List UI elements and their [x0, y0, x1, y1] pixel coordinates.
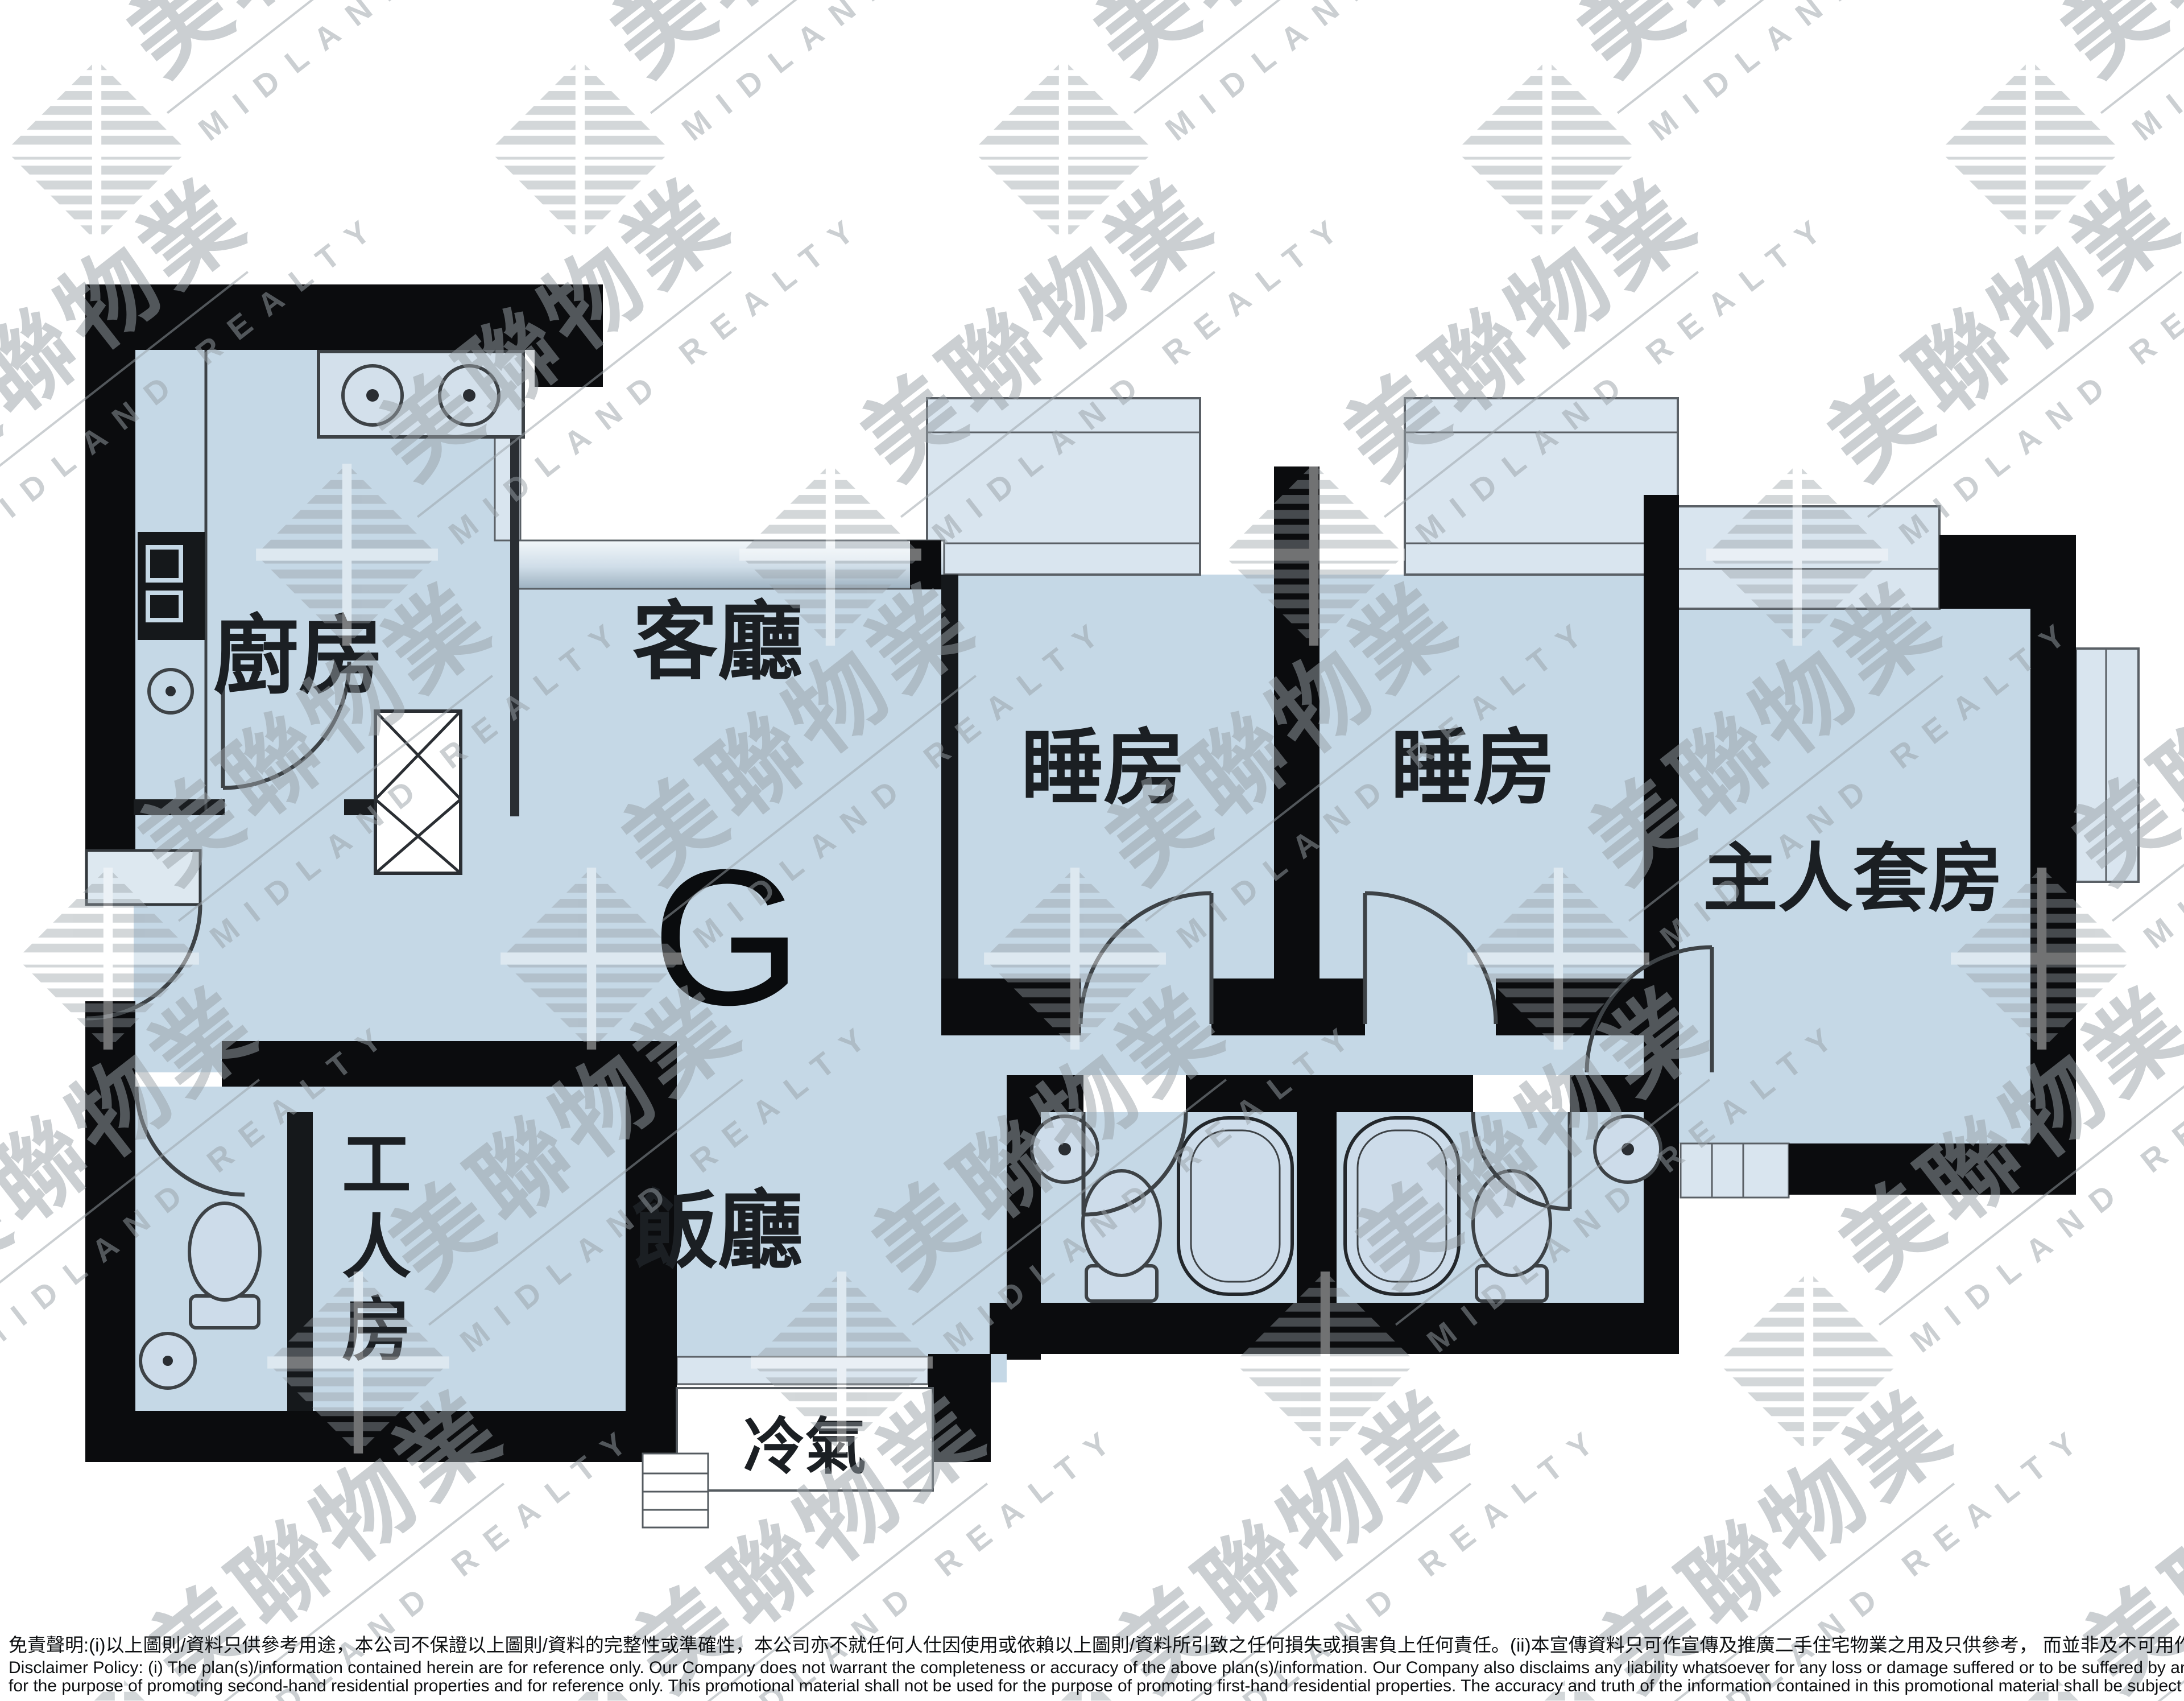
- bath2-top-wall-a: [1337, 1075, 1473, 1112]
- master-left-wall-top: [1644, 495, 1679, 609]
- bath-divider-wall: [1297, 1112, 1337, 1303]
- ac-louvre-box: [643, 1454, 708, 1527]
- living-room-label: 客廳: [632, 594, 803, 690]
- floor-plan-page: { "floor_plan": { "unit_letter": "G", "r…: [0, 0, 2184, 1701]
- floor-plan-canvas: 美聯物業 MIDLAND REALTY: [0, 0, 2184, 1701]
- disclaimer-en-line1: Disclaimer Policy: (i) The plan(s)/infor…: [9, 1658, 2184, 1677]
- disclaimer-en-line2: for the purpose of promoting second-hand…: [9, 1677, 2184, 1695]
- master-top-step-wall: [1939, 535, 2076, 609]
- maid-room-label-char1: 工: [342, 1126, 411, 1204]
- disclaimer-zh: 免責聲明:(i)以上圖則/資料只供參考用途，本公司不保證以上圖則/資料的完整性或…: [9, 1634, 2184, 1655]
- disclaimer-block: 免責聲明:(i)以上圖則/資料只供參考用途，本公司不保證以上圖則/資料的完整性或…: [9, 1634, 2184, 1695]
- toilet-icon: [189, 1203, 260, 1300]
